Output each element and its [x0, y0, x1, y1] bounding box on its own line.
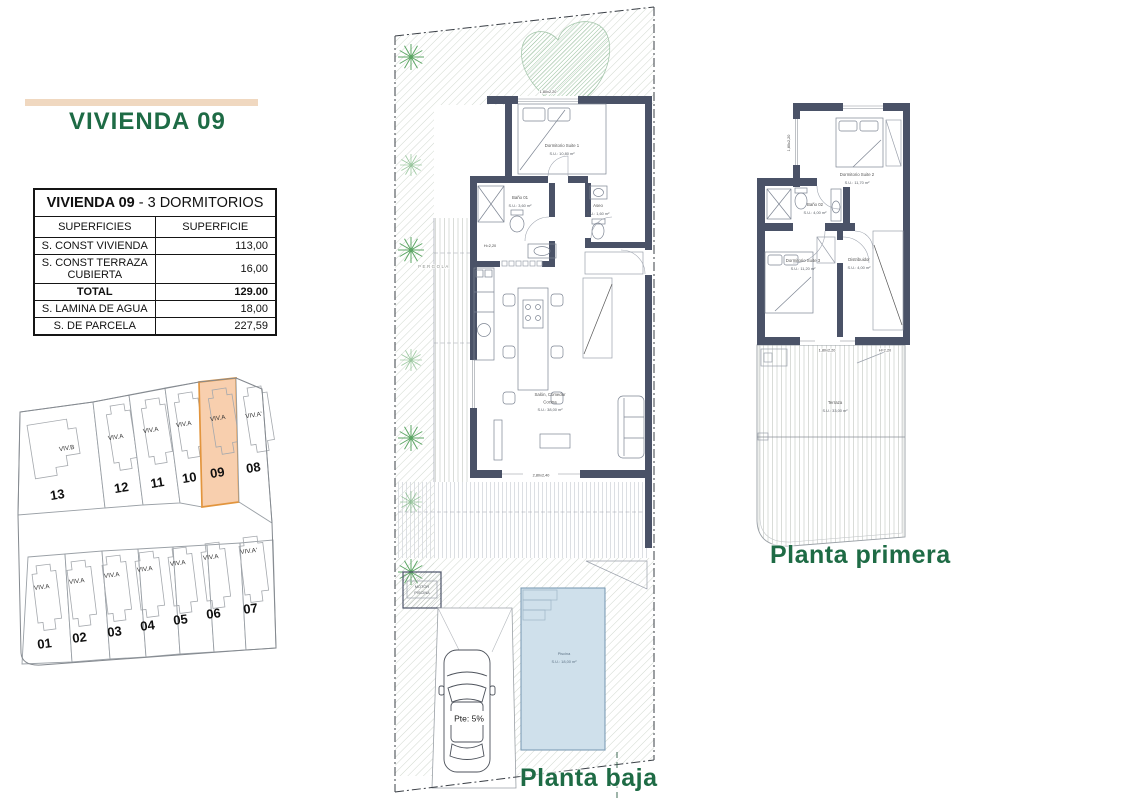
dim-window-bottom-first: 1,80x2,20	[819, 349, 836, 353]
motor-box: MOTOR PISCINA	[403, 572, 441, 608]
plot-number: 10	[181, 469, 198, 486]
dim-window-left-first: 1,80x2,20	[787, 135, 791, 152]
room-label-aseo: Aseo	[593, 203, 603, 208]
svg-text:S.U.: 11,70 m²: S.U.: 11,70 m²	[845, 180, 870, 185]
room-label-distribuidor: Distribuidor	[848, 257, 870, 262]
table-row: S. CONST TERRAZA CUBIERTA16,00	[34, 255, 276, 284]
window-bottom-first	[800, 337, 855, 345]
table-row: S. LAMINA DE AGUA18,00	[34, 301, 276, 318]
floor-plan-first: Terraza S.U.: 33,00 m²	[745, 85, 925, 585]
table-title: VIVIENDA 09 - 3 DORMITORIOS	[34, 189, 276, 217]
label-planta-baja: Planta baja	[520, 764, 658, 793]
svg-text:S.U.: 1,60 m²: S.U.: 1,60 m²	[587, 211, 611, 216]
svg-text:Cocina: Cocina	[543, 400, 557, 405]
plot-number: 06	[205, 605, 221, 622]
svg-text:PISCINA: PISCINA	[414, 590, 430, 595]
plot-number: 07	[242, 600, 258, 617]
plot-number: 11	[149, 474, 165, 491]
svg-text:MOTOR: MOTOR	[415, 584, 430, 589]
page-title: VIVIENDA 09	[69, 108, 226, 136]
header-bar	[25, 99, 258, 106]
svg-text:S.U.: 38,00 m²: S.U.: 38,00 m²	[537, 407, 563, 412]
plot-number: 02	[71, 629, 87, 646]
plot-number: 03	[106, 623, 122, 640]
slope-label: Pte: 5%	[450, 711, 488, 725]
pool: Piscina S.U.: 18,00 m²	[521, 588, 605, 750]
svg-text:S.U.: 11,20 m²: S.U.: 11,20 m²	[791, 266, 816, 271]
table-row: S. DE PARCELA227,59	[34, 318, 276, 336]
plot-number: 05	[172, 611, 188, 628]
table-row: TOTAL129.00	[34, 284, 276, 301]
svg-text:Pte: 5%: Pte: 5%	[454, 714, 484, 724]
svg-text:S.U.: 4,00 m²: S.U.: 4,00 m²	[848, 265, 872, 270]
terrace: Terraza S.U.: 33,00 m²	[757, 345, 905, 546]
svg-text:S.U.: 10,80 m²: S.U.: 10,80 m²	[549, 151, 575, 156]
col-superficie: SUPERFICIE	[155, 217, 276, 238]
page: { "header": { "title": "VIVIENDA 09" }, …	[0, 0, 1132, 800]
window-west	[470, 360, 477, 408]
dim-height-first: H=2,20	[879, 349, 891, 353]
label-planta-primera: Planta primera	[770, 541, 951, 570]
window-left-first	[793, 119, 800, 165]
col-superficies: SUPERFICIES	[34, 217, 155, 238]
svg-text:S.U.: 33,00 m²: S.U.: 33,00 m²	[822, 408, 848, 413]
plot-number: 09	[209, 464, 226, 481]
svg-text:S.U.: 4,00 m²: S.U.: 4,00 m²	[804, 210, 828, 215]
plot-number: 12	[113, 479, 130, 496]
svg-text:S.U.: 18,00 m²: S.U.: 18,00 m²	[551, 659, 577, 664]
floor-plan-ground: MOTOR PISCINA Pte: 5% Piscina S.U.: 18,0…	[390, 0, 660, 800]
window-top	[518, 96, 578, 104]
window-top-first	[843, 103, 883, 111]
room-label-suite2: Dormitorio Suite 2	[840, 172, 875, 177]
dim-height-ground: H=2,20	[484, 244, 496, 248]
room-label-bano2: Baño 02	[807, 202, 824, 207]
pergola-label: PERGOLA	[418, 264, 450, 269]
plot-number: 08	[245, 459, 262, 476]
plot-number: 13	[49, 486, 66, 503]
plot-01: VIV.A01	[22, 554, 72, 664]
room-label-bano1: Baño 01	[512, 195, 529, 200]
room-label-suite1: Dormitorio Suite 1	[545, 143, 580, 148]
room-label-suite3: Dormitorio Suite 3	[786, 258, 821, 263]
dim-window-bottom: 2,80x2,40	[533, 474, 550, 478]
svg-text:Piscina: Piscina	[558, 651, 571, 656]
areas-table: VIVIENDA 09 - 3 DORMITORIOS SUPERFICIES …	[33, 188, 277, 336]
dim-window-top: 1,80x2,20	[540, 90, 557, 94]
room-label-salon: Salón, Comedor	[534, 392, 566, 397]
plot-09: VIV.A09	[199, 378, 241, 507]
table-row: S. CONST VIVIENDA113,00	[34, 238, 276, 255]
site-plan: VIV.B13VIV.A12VIV.A11VIV.A10VIV.A09VIV.A…	[10, 365, 295, 710]
site-plots: VIV.B13VIV.A12VIV.A11VIV.A10VIV.A09VIV.A…	[18, 378, 276, 665]
plot-number: 04	[139, 617, 156, 634]
plot-number: 01	[36, 635, 52, 652]
svg-text:S.U.: 3,60 m²: S.U.: 3,60 m²	[509, 203, 533, 208]
room-label-terraza: Terraza	[828, 400, 843, 405]
plot-13: VIV.B13	[18, 402, 105, 515]
table-header-row: SUPERFICIES SUPERFICIE	[34, 217, 276, 238]
